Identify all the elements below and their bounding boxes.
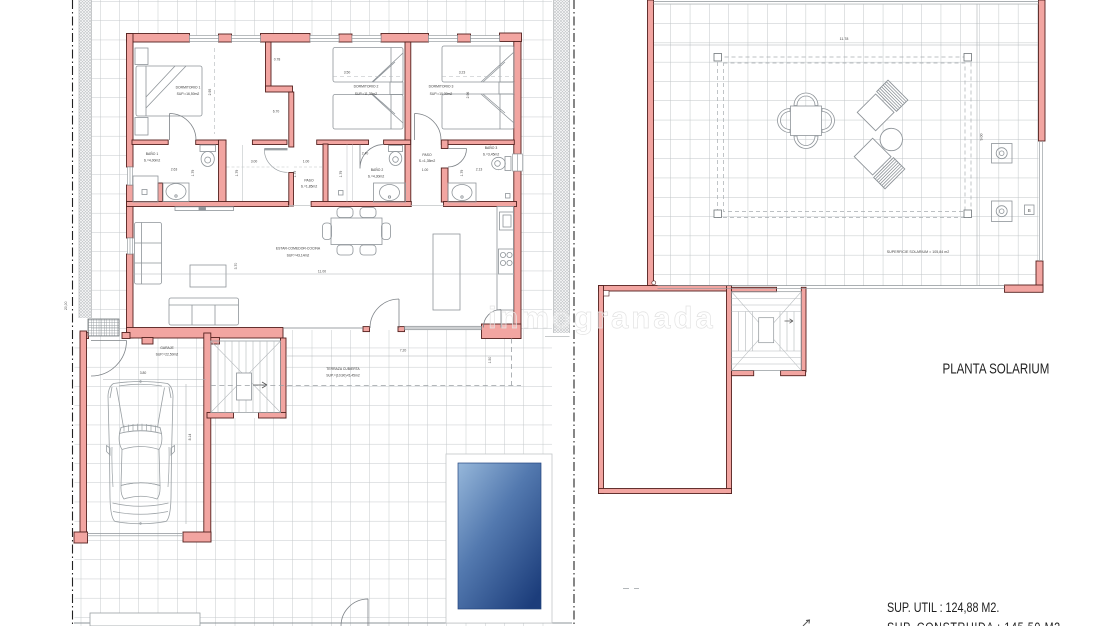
svg-text:3.00: 3.00 <box>251 160 258 164</box>
svg-text:BAÑO 2: BAÑO 2 <box>371 167 384 172</box>
svg-text:ESTAR-COMEDOR-COCINA: ESTAR-COMEDOR-COCINA <box>276 247 321 251</box>
svg-text:11.78: 11.78 <box>840 37 849 41</box>
svg-text:inmogranada: inmogranada <box>488 300 716 335</box>
svg-text:PLANTA SOLARIUM: PLANTA SOLARIUM <box>943 360 1050 377</box>
svg-text:3.50: 3.50 <box>344 71 351 75</box>
svg-text:SUP.=43,14m2: SUP.=43,14m2 <box>287 254 310 258</box>
svg-text:7.20: 7.20 <box>400 349 407 353</box>
svg-text:S.=1,35m2: S.=1,35m2 <box>419 159 436 163</box>
svg-text:SUP.=10,30m2: SUP.=10,30m2 <box>430 92 453 96</box>
svg-text:3.80: 3.80 <box>140 371 147 375</box>
svg-text:6.70: 6.70 <box>273 110 280 114</box>
svg-text:1.79: 1.79 <box>460 170 464 177</box>
svg-text:PASO: PASO <box>304 179 314 183</box>
svg-text:SUP. CONSTRUIDA : 145,50 M2.: SUP. CONSTRUIDA : 145,50 M2. <box>887 620 1064 626</box>
svg-text:DORMITORIO 1: DORMITORIO 1 <box>176 86 201 90</box>
svg-text:SUP. UTIL : 124,88 M2.: SUP. UTIL : 124,88 M2. <box>887 600 999 616</box>
svg-text:1.00: 1.00 <box>422 168 429 172</box>
svg-text:PASO: PASO <box>422 153 432 157</box>
svg-text:S.=1,85m2: S.=1,85m2 <box>301 185 318 189</box>
svg-text:DORMITORIO 3: DORMITORIO 3 <box>429 85 454 89</box>
svg-text:1.79: 1.79 <box>339 171 343 178</box>
svg-text:2.96: 2.96 <box>466 92 470 99</box>
svg-text:S.=4,30m2: S.=4,30m2 <box>368 175 385 179</box>
svg-text:0.78: 0.78 <box>274 58 281 62</box>
svg-text:B: B <box>1028 208 1031 213</box>
svg-text:1.50: 1.50 <box>488 357 492 364</box>
svg-text:1.00: 1.00 <box>303 160 310 164</box>
svg-text:1.79: 1.79 <box>191 170 195 177</box>
svg-text:SUP.=11,35m2: SUP.=11,35m2 <box>355 92 378 96</box>
svg-text:3.70: 3.70 <box>234 263 238 270</box>
svg-text:S.=3,45m2: S.=3,45m2 <box>483 153 500 157</box>
svg-text:BAÑO 1: BAÑO 1 <box>146 151 159 156</box>
svg-text:2.95: 2.95 <box>208 89 212 96</box>
svg-text:S.=4,00m2: S.=4,00m2 <box>144 159 161 163</box>
svg-text:SUP.=16,50m2: SUP.=16,50m2 <box>177 92 200 96</box>
svg-text:BAÑO 3: BAÑO 3 <box>485 145 498 150</box>
svg-text:2.63: 2.63 <box>171 168 178 172</box>
svg-text:20,00: 20,00 <box>64 301 68 310</box>
svg-text:1.79: 1.79 <box>293 171 297 178</box>
svg-text:8.14: 8.14 <box>188 434 192 441</box>
svg-text:9.00: 9.00 <box>980 134 984 141</box>
svg-text:TERRAZA CUBIERTA: TERRAZA CUBIERTA <box>326 367 360 371</box>
svg-text:GARAJE: GARAJE <box>160 346 174 350</box>
svg-text:SUP.=22,50m2: SUP.=22,50m2 <box>156 353 179 357</box>
svg-text:SUP.=(10,90)+5,45m2: SUP.=(10,90)+5,45m2 <box>326 374 360 378</box>
svg-text:3.23: 3.23 <box>459 71 466 75</box>
svg-text:2.40: 2.40 <box>362 152 369 156</box>
svg-text:11.00: 11.00 <box>318 270 326 274</box>
svg-text:1.79: 1.79 <box>235 170 239 177</box>
svg-text:DORMITORIO 2: DORMITORIO 2 <box>354 85 379 89</box>
svg-text:SUPERFICIE SOLARIUM = 105,84 m: SUPERFICIE SOLARIUM = 105,84 m2 <box>887 250 949 254</box>
svg-text:2.13: 2.13 <box>476 168 483 172</box>
